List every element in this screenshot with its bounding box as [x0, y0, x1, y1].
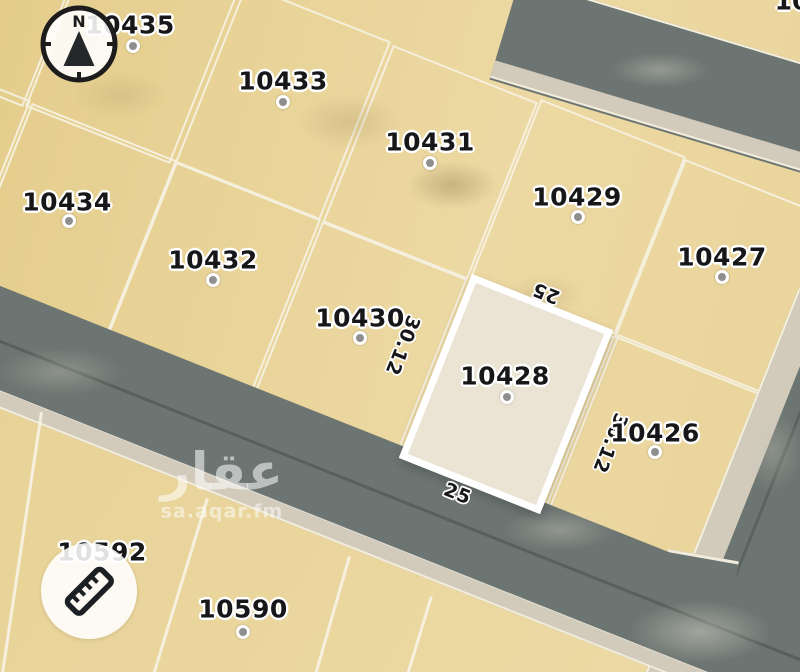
parcel-label: 10429	[532, 185, 621, 210]
parcel-dot	[236, 625, 250, 639]
compass-icon: N	[37, 2, 121, 86]
parcel-dot	[423, 156, 437, 170]
parcel-label: 10434	[22, 190, 111, 215]
parcel-dot	[571, 210, 585, 224]
measure-tool-button[interactable]	[41, 543, 137, 639]
compass-north-label: N	[72, 12, 85, 31]
parcel-dot	[62, 214, 76, 228]
ruler-icon	[57, 559, 121, 623]
parcel-label: 10431	[385, 130, 474, 155]
parcel-dot	[500, 390, 514, 404]
parcel-label: 10432	[168, 248, 257, 273]
parcel-label: 10430	[315, 306, 404, 331]
parcel-label-partial: 10	[775, 0, 800, 16]
parcel-map[interactable]: 25 30.12 30.12 25 10435 10433 10431 1042…	[0, 0, 800, 672]
parcel-dot	[206, 273, 220, 287]
parcel-dot	[353, 331, 367, 345]
parcel-label: 10590	[198, 597, 287, 622]
parcel-label: 10426	[610, 421, 699, 446]
parcel-label: 10427	[677, 245, 766, 270]
parcel-label: 10428	[460, 364, 549, 389]
parcel-label: 10433	[238, 69, 327, 94]
parcel-dot	[648, 445, 662, 459]
parcel-dot	[715, 270, 729, 284]
parcel-dot	[126, 39, 140, 53]
compass-widget[interactable]: N	[37, 2, 121, 86]
parcel-dot	[276, 95, 290, 109]
